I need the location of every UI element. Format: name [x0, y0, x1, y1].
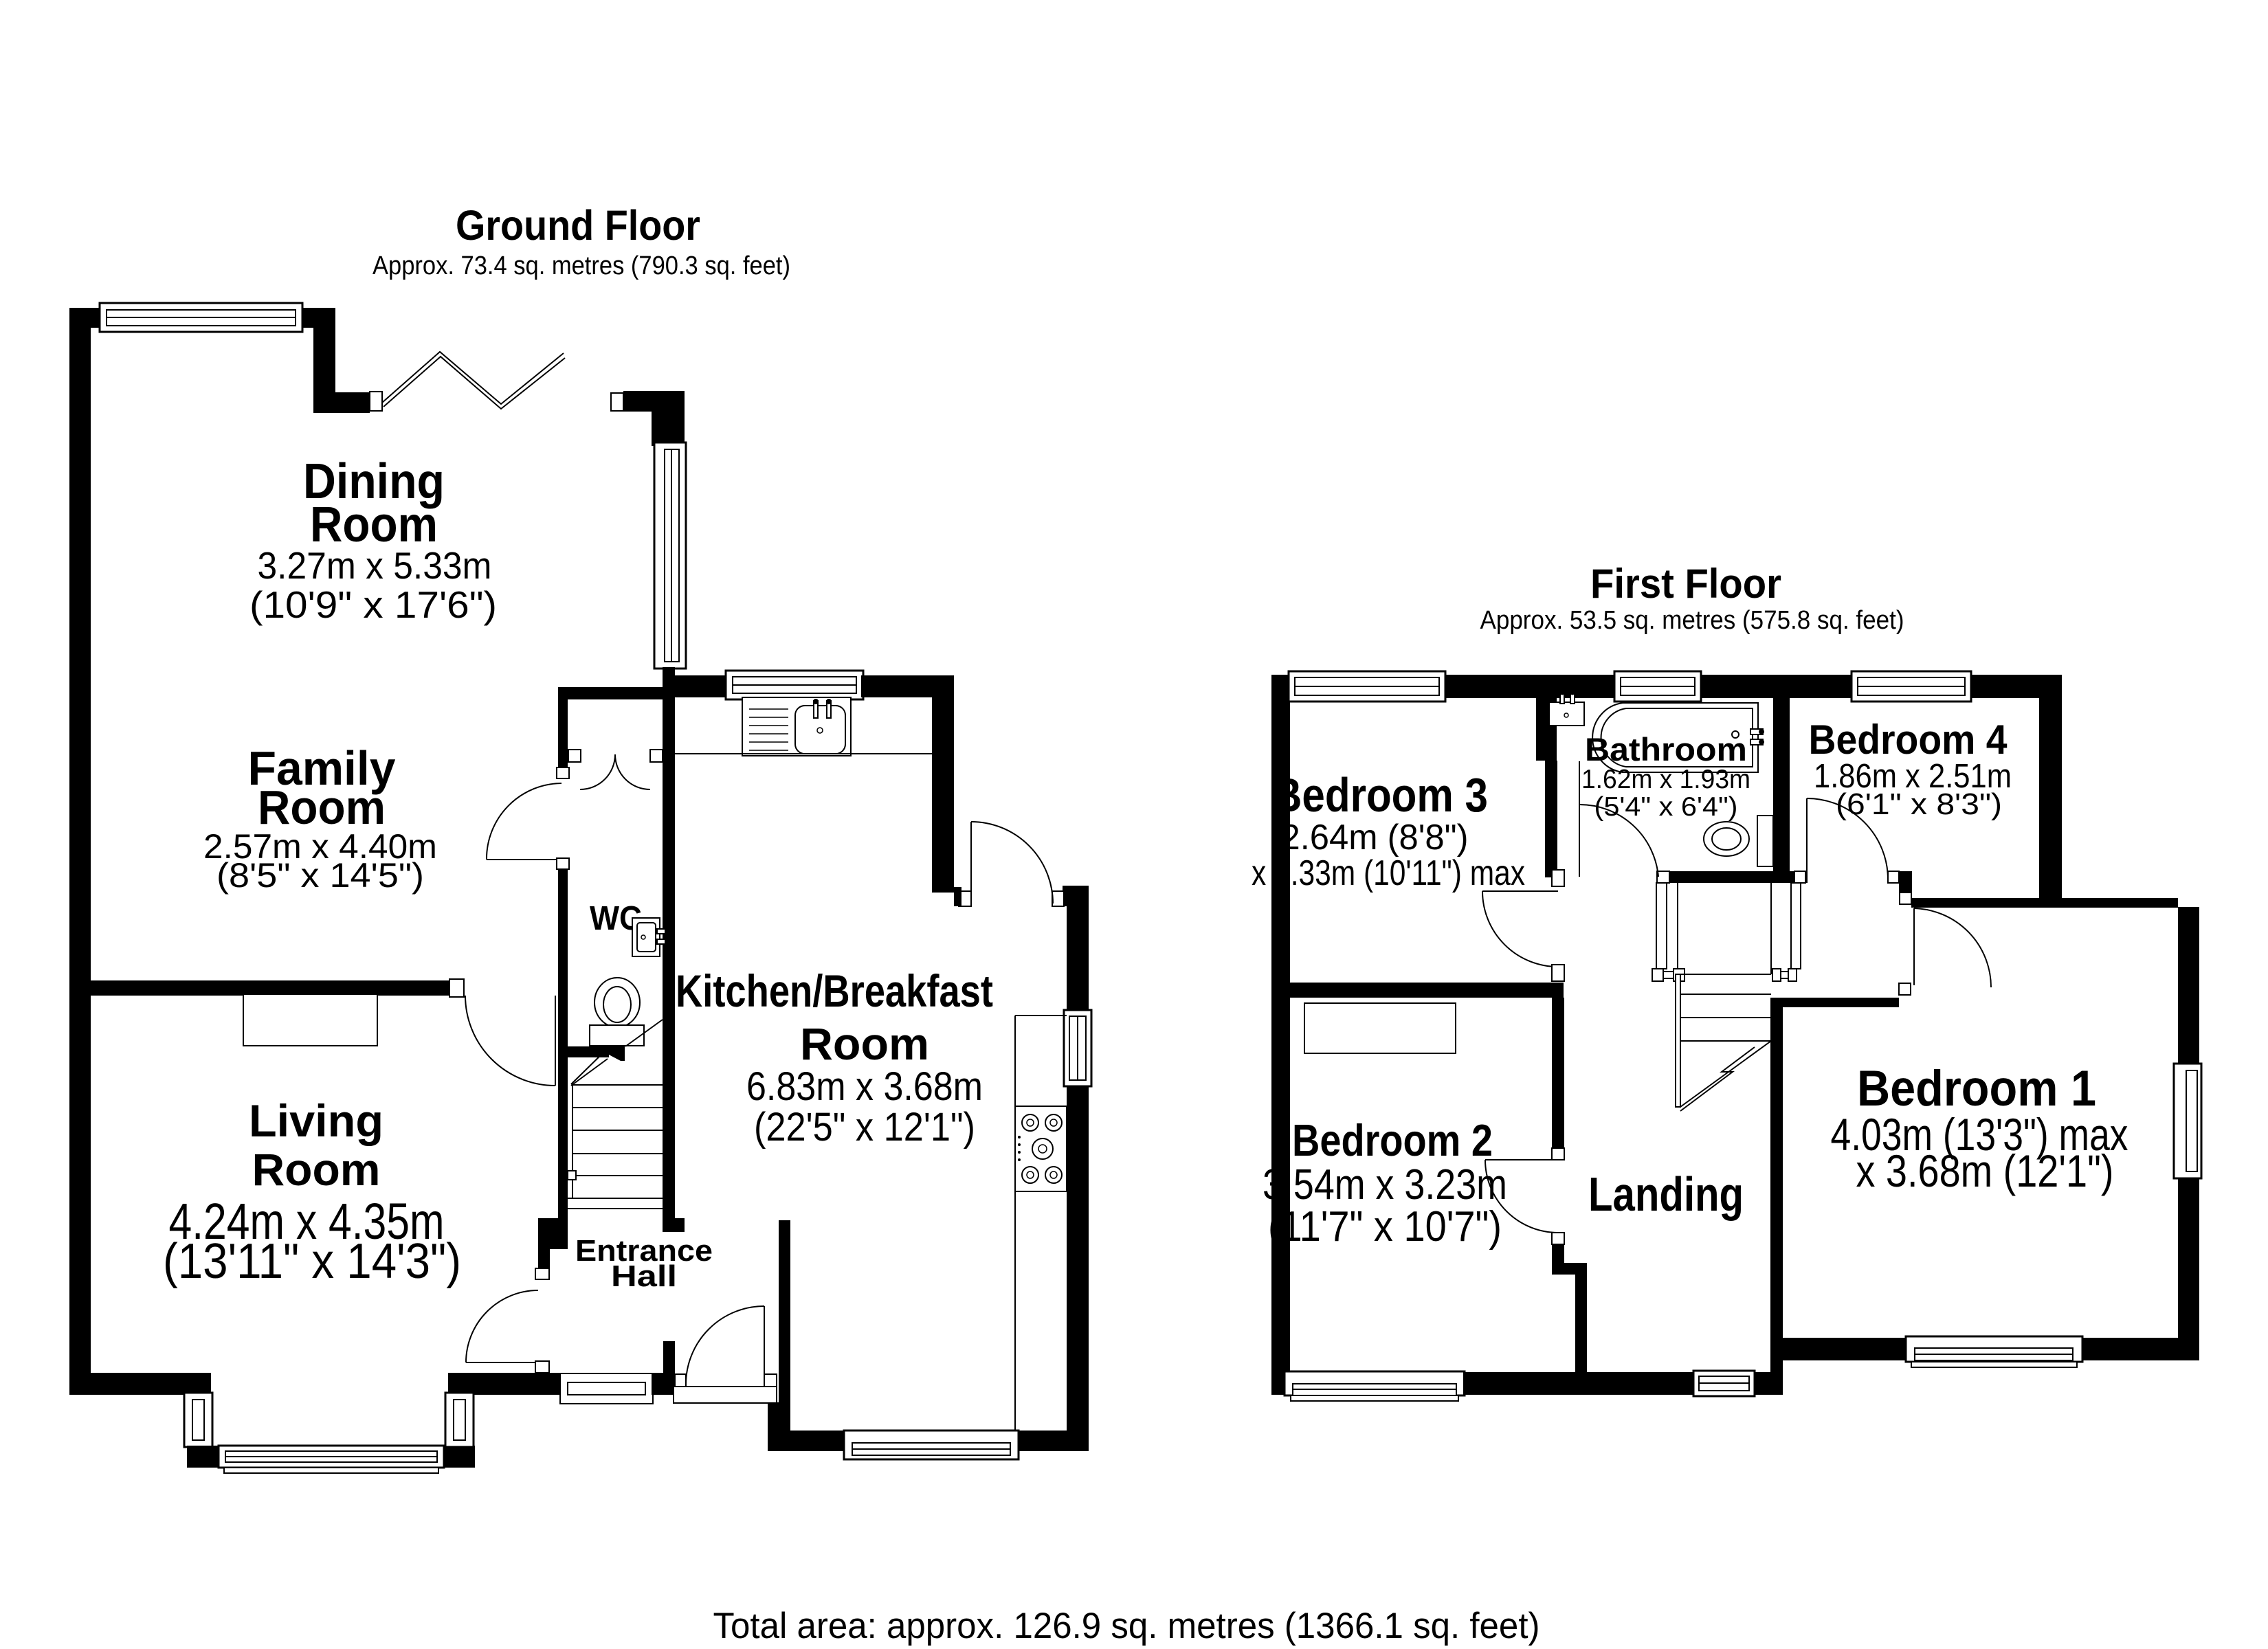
svg-text:Room: Room [800, 1018, 929, 1069]
svg-text:1.62m x 1.93m: 1.62m x 1.93m [1581, 765, 1750, 794]
svg-text:Bathroom: Bathroom [1585, 731, 1747, 767]
svg-text:(22'5" x 12'1"): (22'5" x 12'1") [754, 1105, 975, 1149]
svg-text:(8'5" x 14'5"): (8'5" x 14'5") [216, 856, 424, 895]
svg-text:Approx. 53.5 sq. metres (575.8: Approx. 53.5 sq. metres (575.8 sq. feet) [1480, 606, 1904, 635]
svg-text:First Floor: First Floor [1590, 561, 1781, 607]
svg-text:Bedroom 2: Bedroom 2 [1292, 1115, 1493, 1165]
svg-text:3.27m x 5.33m: 3.27m x 5.33m [258, 544, 492, 587]
svg-text:3.54m x 3.23m: 3.54m x 3.23m [1263, 1161, 1507, 1209]
svg-text:(5'4" x 6'4"): (5'4" x 6'4") [1594, 792, 1738, 822]
svg-text:Bedroom 3: Bedroom 3 [1272, 768, 1488, 822]
svg-text:Hall: Hall [611, 1259, 677, 1293]
svg-text:(13'11" x 14'3"): (13'11" x 14'3") [163, 1234, 461, 1289]
svg-text:Ground Floor: Ground Floor [456, 202, 700, 249]
svg-text:Approx. 73.4 sq. metres (790.3: Approx. 73.4 sq. metres (790.3 sq. feet) [373, 251, 790, 280]
svg-text:2.64m (8'8"): 2.64m (8'8") [1281, 818, 1469, 857]
svg-text:x 3.68m (12'1"): x 3.68m (12'1") [1856, 1145, 2114, 1196]
svg-text:(11'7" x 10'7"): (11'7" x 10'7") [1268, 1203, 1502, 1250]
svg-text:Bedroom 1: Bedroom 1 [1857, 1061, 2096, 1117]
svg-text:(10'9" x 17'6"): (10'9" x 17'6") [249, 583, 497, 626]
svg-text:Total area: approx. 126.9 sq.: Total area: approx. 126.9 sq. metres (13… [713, 1606, 1540, 1646]
svg-text:x 3.33m (10'11") max: x 3.33m (10'11") max [1252, 853, 1525, 893]
svg-text:Bedroom 4: Bedroom 4 [1809, 717, 2008, 763]
svg-text:6.83m x 3.68m: 6.83m x 3.68m [746, 1064, 983, 1109]
svg-text:Kitchen/Breakfast: Kitchen/Breakfast [676, 965, 993, 1016]
svg-text:Room: Room [252, 1144, 381, 1195]
svg-text:Landing: Landing [1588, 1167, 1744, 1221]
svg-text:(6'1" x 8'3"): (6'1" x 8'3") [1836, 787, 2002, 821]
svg-text:Living: Living [249, 1095, 383, 1146]
svg-text:Room: Room [258, 781, 386, 834]
